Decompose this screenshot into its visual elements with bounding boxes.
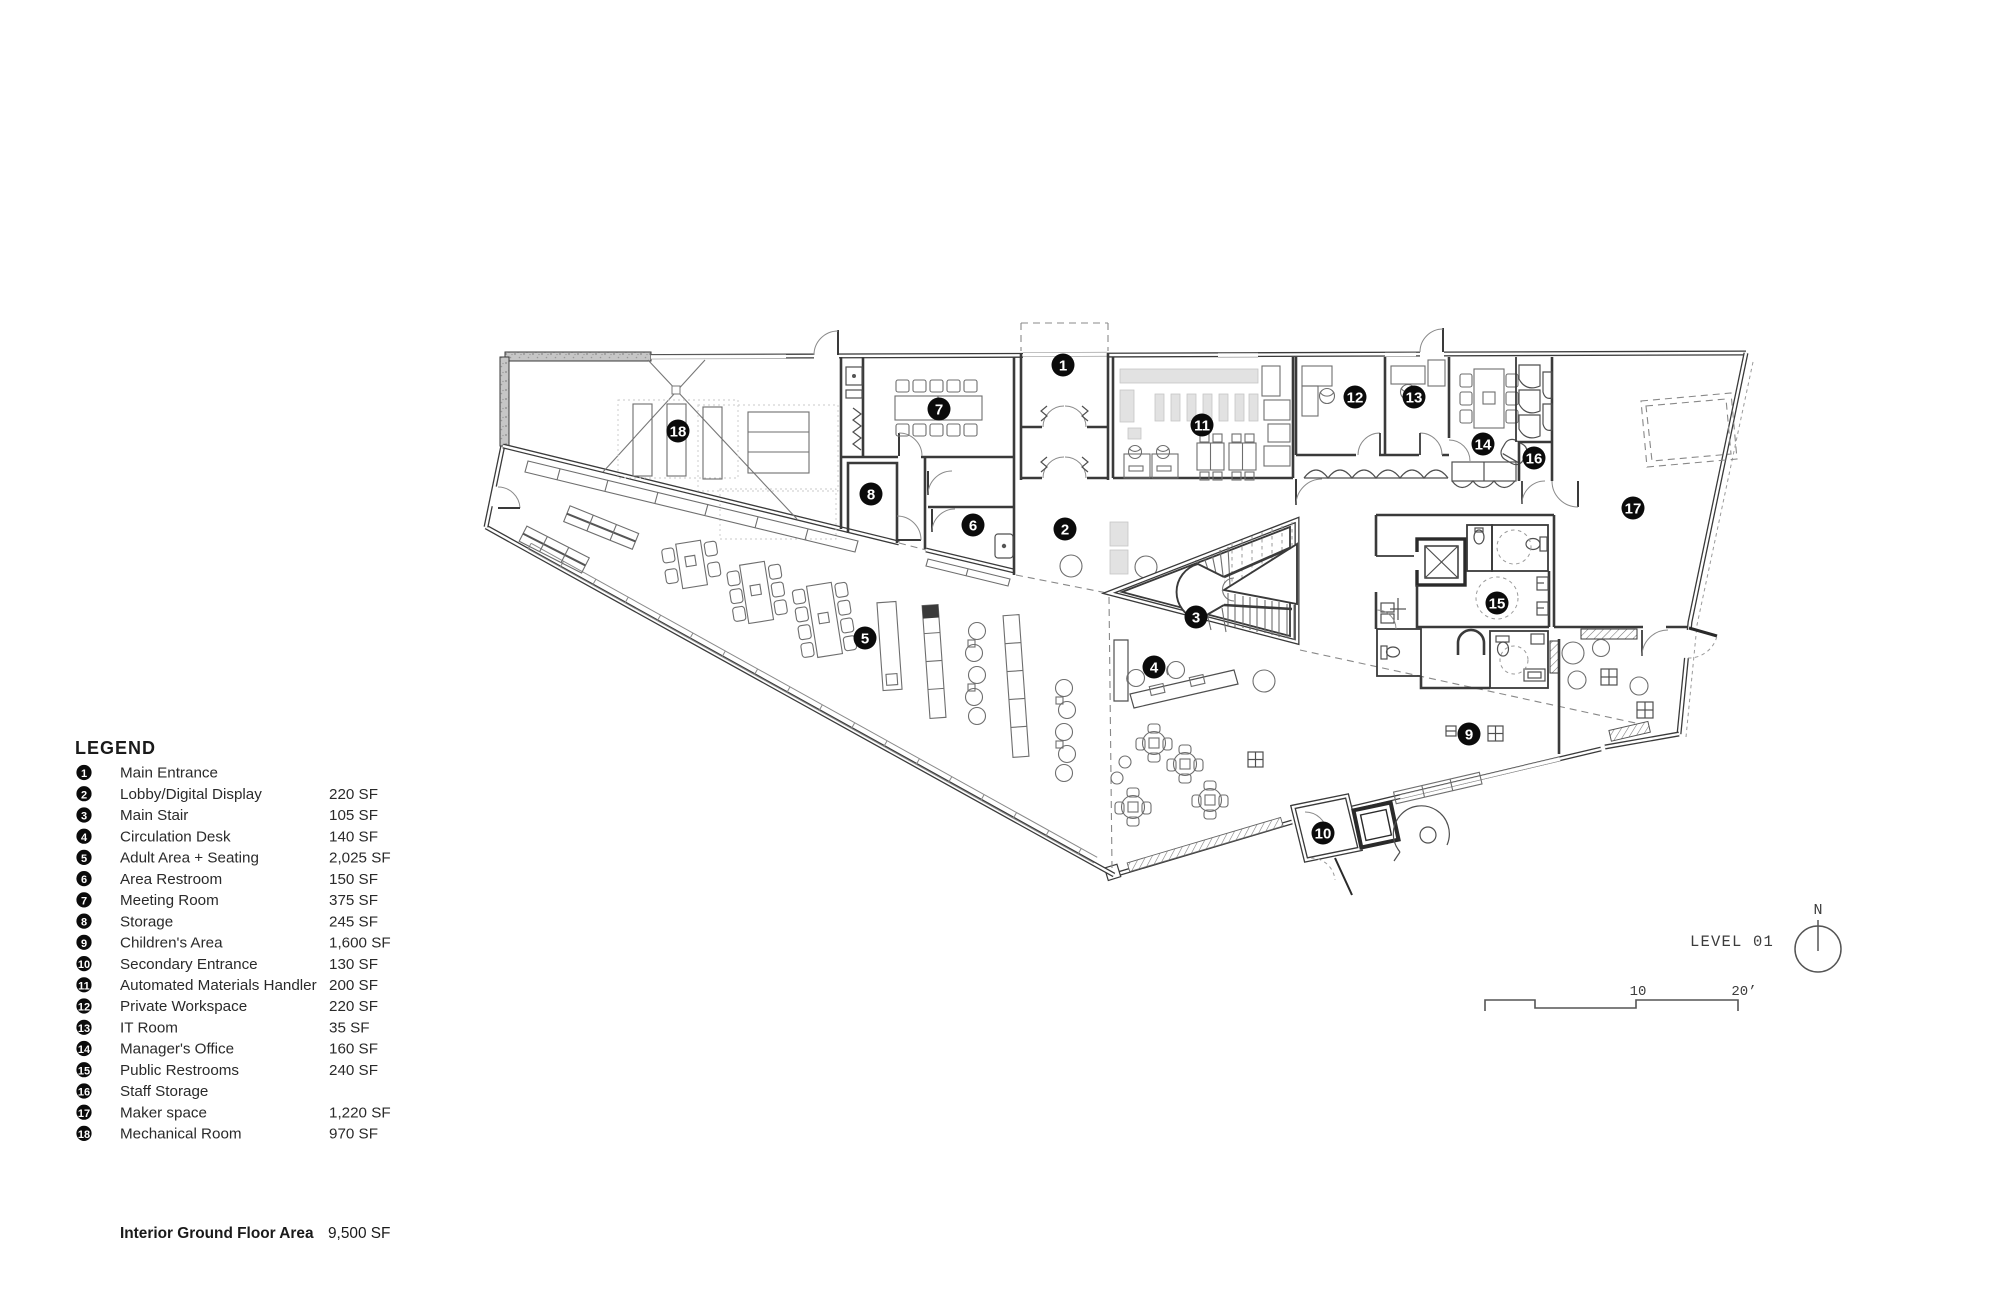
svg-text:220 SF: 220 SF (329, 786, 378, 803)
svg-text:13: 13 (1406, 389, 1423, 406)
svg-text:18: 18 (670, 423, 687, 440)
svg-text:Area Restroom: Area Restroom (120, 871, 222, 888)
svg-text:4: 4 (1150, 659, 1159, 676)
svg-text:8: 8 (867, 486, 875, 503)
svg-text:14: 14 (78, 1044, 91, 1056)
svg-text:970 SF: 970 SF (329, 1126, 378, 1143)
svg-text:18: 18 (78, 1129, 90, 1141)
svg-text:Main Stair: Main Stair (120, 807, 188, 824)
svg-text:9,500 SF: 9,500 SF (328, 1225, 390, 1242)
svg-text:11: 11 (1194, 417, 1210, 434)
svg-text:8: 8 (81, 917, 87, 929)
svg-text:1: 1 (81, 768, 87, 780)
svg-text:15: 15 (1489, 595, 1506, 612)
svg-text:14: 14 (1475, 436, 1492, 453)
svg-text:6: 6 (969, 517, 977, 534)
svg-text:9: 9 (81, 938, 87, 950)
svg-text:Children's Area: Children's Area (120, 935, 223, 952)
svg-text:4: 4 (81, 832, 88, 844)
svg-text:Secondary Entrance: Secondary Entrance (120, 956, 258, 973)
svg-text:LEGEND: LEGEND (75, 738, 156, 758)
svg-text:375 SF: 375 SF (329, 892, 378, 909)
svg-text:17: 17 (78, 1108, 90, 1120)
svg-text:Meeting Room: Meeting Room (120, 892, 219, 909)
svg-text:6: 6 (81, 874, 87, 886)
svg-text:140 SF: 140 SF (329, 828, 378, 845)
svg-text:160 SF: 160 SF (329, 1041, 378, 1058)
svg-text:10: 10 (78, 959, 90, 971)
svg-text:Automated Materials Handler: Automated Materials Handler (120, 977, 317, 994)
svg-text:16: 16 (78, 1087, 90, 1099)
svg-text:Main Entrance: Main Entrance (120, 765, 218, 782)
svg-text:17: 17 (1625, 500, 1642, 517)
svg-text:200 SF: 200 SF (329, 977, 378, 994)
svg-text:Adult Area + Seating: Adult Area + Seating (120, 850, 259, 867)
svg-text:130 SF: 130 SF (329, 956, 378, 973)
svg-text:7: 7 (935, 401, 943, 418)
svg-text:3: 3 (1192, 609, 1200, 626)
svg-text:N: N (1813, 902, 1822, 919)
svg-text:11: 11 (78, 980, 90, 992)
svg-text:Public Restrooms: Public Restrooms (120, 1062, 239, 1079)
svg-text:5: 5 (81, 853, 87, 865)
svg-text:2,025 SF: 2,025 SF (329, 850, 391, 867)
svg-text:150 SF: 150 SF (329, 871, 378, 888)
svg-text:1: 1 (1059, 357, 1067, 374)
svg-text:Storage: Storage (120, 913, 173, 930)
svg-text:35 SF: 35 SF (329, 1020, 370, 1037)
svg-text:2: 2 (1061, 521, 1069, 538)
svg-text:15: 15 (78, 1065, 90, 1077)
svg-text:5: 5 (861, 630, 869, 647)
svg-text:IT Room: IT Room (120, 1020, 178, 1037)
svg-text:10: 10 (1630, 984, 1647, 1000)
svg-text:Circulation Desk: Circulation Desk (120, 828, 231, 845)
svg-text:Interior Ground Floor Area: Interior Ground Floor Area (120, 1225, 314, 1242)
svg-text:1,600 SF: 1,600 SF (329, 935, 391, 952)
svg-text:13: 13 (78, 1023, 90, 1035)
svg-text:12: 12 (1347, 389, 1364, 406)
svg-text:220 SF: 220 SF (329, 998, 378, 1015)
svg-text:Staff Storage: Staff Storage (120, 1083, 208, 1100)
svg-text:240 SF: 240 SF (329, 1062, 378, 1079)
svg-text:10: 10 (1315, 825, 1332, 842)
svg-text:Lobby/Digital Display: Lobby/Digital Display (120, 786, 262, 803)
svg-text:16: 16 (1526, 450, 1543, 467)
svg-text:7: 7 (81, 896, 87, 908)
svg-text:Private Workspace: Private Workspace (120, 998, 247, 1015)
svg-text:9: 9 (1465, 726, 1473, 743)
svg-text:Mechanical Room: Mechanical Room (120, 1126, 242, 1143)
svg-text:Maker space: Maker space (120, 1104, 207, 1121)
svg-text:Manager's Office: Manager's Office (120, 1041, 234, 1058)
svg-text:3: 3 (81, 811, 87, 823)
svg-text:245 SF: 245 SF (329, 913, 378, 930)
svg-text:1,220 SF: 1,220 SF (329, 1104, 391, 1121)
svg-text:LEVEL 01: LEVEL 01 (1690, 933, 1774, 951)
svg-text:105 SF: 105 SF (329, 807, 378, 824)
svg-text:20’: 20’ (1731, 984, 1756, 1000)
svg-text:2: 2 (81, 789, 87, 801)
svg-text:12: 12 (78, 1002, 90, 1014)
